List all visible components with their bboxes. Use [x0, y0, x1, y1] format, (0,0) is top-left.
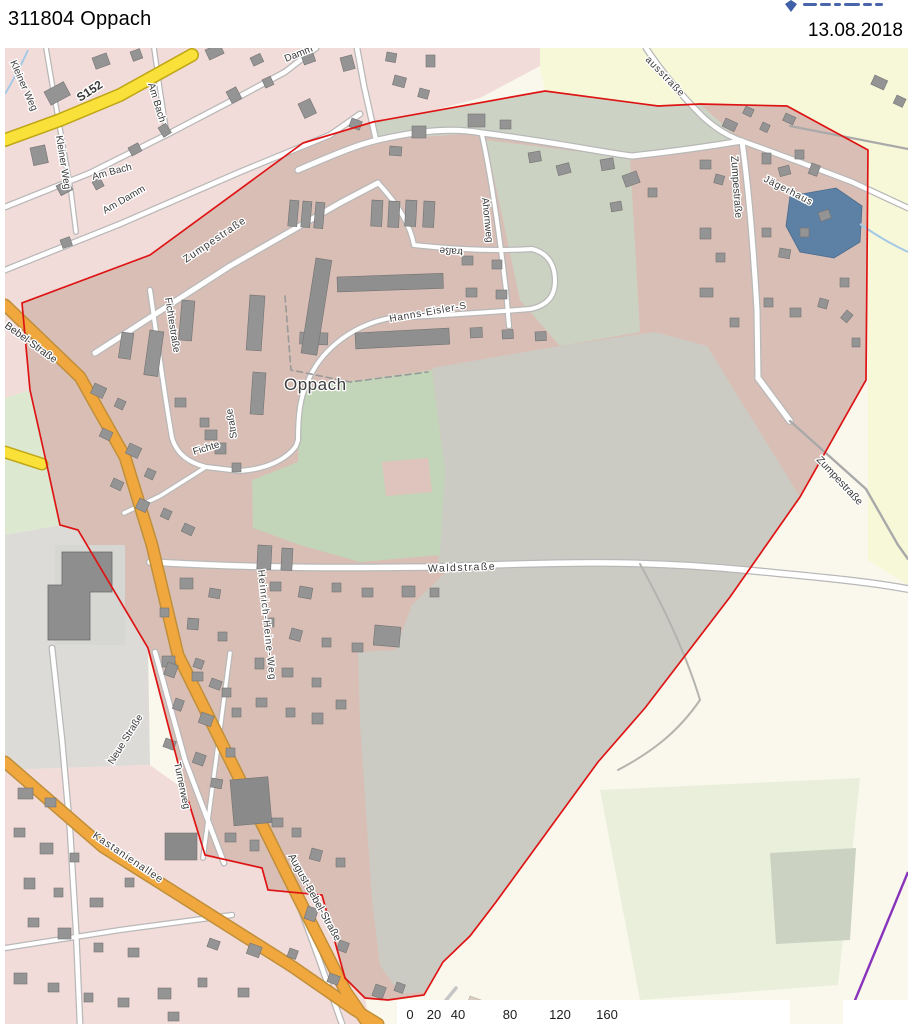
scale-label-40: 40 [451, 1007, 465, 1022]
scale-label-0: 0 [406, 1007, 413, 1022]
scale-label-120: 120 [549, 1007, 571, 1022]
scale-label-160: 160 [596, 1007, 618, 1022]
map-sheet: 311804 Oppach 13.08.2018 [0, 0, 913, 1024]
map-canvas: S152Kleiner WegKleiner WegAm BachAm Bach… [0, 0, 913, 1024]
street-label-hanns-eisler-strasse-2: traße [439, 244, 463, 257]
street-label-waldstrasse: Waldstraße [428, 561, 497, 575]
industrial-area [48, 545, 125, 645]
street-label-place-oppach: Oppach [284, 375, 347, 394]
scale-label-20: 20 [427, 1007, 441, 1022]
scale-label-80: 80 [503, 1007, 517, 1022]
